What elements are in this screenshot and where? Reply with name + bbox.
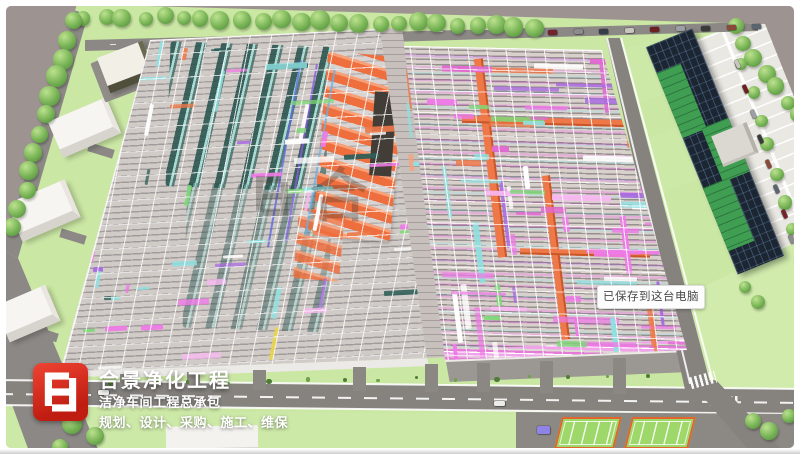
parked-car xyxy=(780,209,787,219)
render-scene: 合 合景净化工程 洁净车间工程总承包 规划、设计、采购、施工、维保 已保存到这台… xyxy=(6,6,794,448)
parked-car xyxy=(757,134,764,144)
parked-car xyxy=(573,29,582,34)
company-tagline: 洁净车间工程总承包 xyxy=(99,392,221,411)
world: 合 合景净化工程 洁净车间工程总承包 规划、设计、采购、施工、维保 已保存到这台… xyxy=(6,6,794,448)
parked-car xyxy=(734,59,741,69)
parked-car xyxy=(765,159,772,169)
watermark-glyph: 合 xyxy=(310,166,368,228)
parked-car xyxy=(675,26,684,31)
road-car xyxy=(494,401,505,406)
parked-car xyxy=(701,25,710,30)
company-logo-icon xyxy=(33,363,88,421)
parked-car xyxy=(752,24,761,29)
screenshot-frame: 合 合景净化工程 洁净车间工程总承包 规划、设计、采购、施工、维保 已保存到这台… xyxy=(0,0,800,454)
watermark-logo-icon xyxy=(244,166,300,226)
parked-car xyxy=(773,184,780,194)
parked-car xyxy=(788,234,794,244)
company-logo xyxy=(33,363,88,421)
road-car xyxy=(537,426,550,434)
parked-car xyxy=(624,28,633,33)
parked-car xyxy=(650,27,659,32)
watermark: 合 xyxy=(244,166,368,228)
parked-car xyxy=(749,109,756,119)
parked-car xyxy=(599,28,608,33)
company-name: 合景净化工程 xyxy=(99,364,231,393)
company-services: 规划、设计、采购、施工、维保 xyxy=(99,412,288,431)
parked-car xyxy=(548,30,557,35)
parked-car xyxy=(726,25,735,30)
save-toast: 已保存到这台电脑 xyxy=(597,285,705,309)
parked-car xyxy=(742,84,749,94)
